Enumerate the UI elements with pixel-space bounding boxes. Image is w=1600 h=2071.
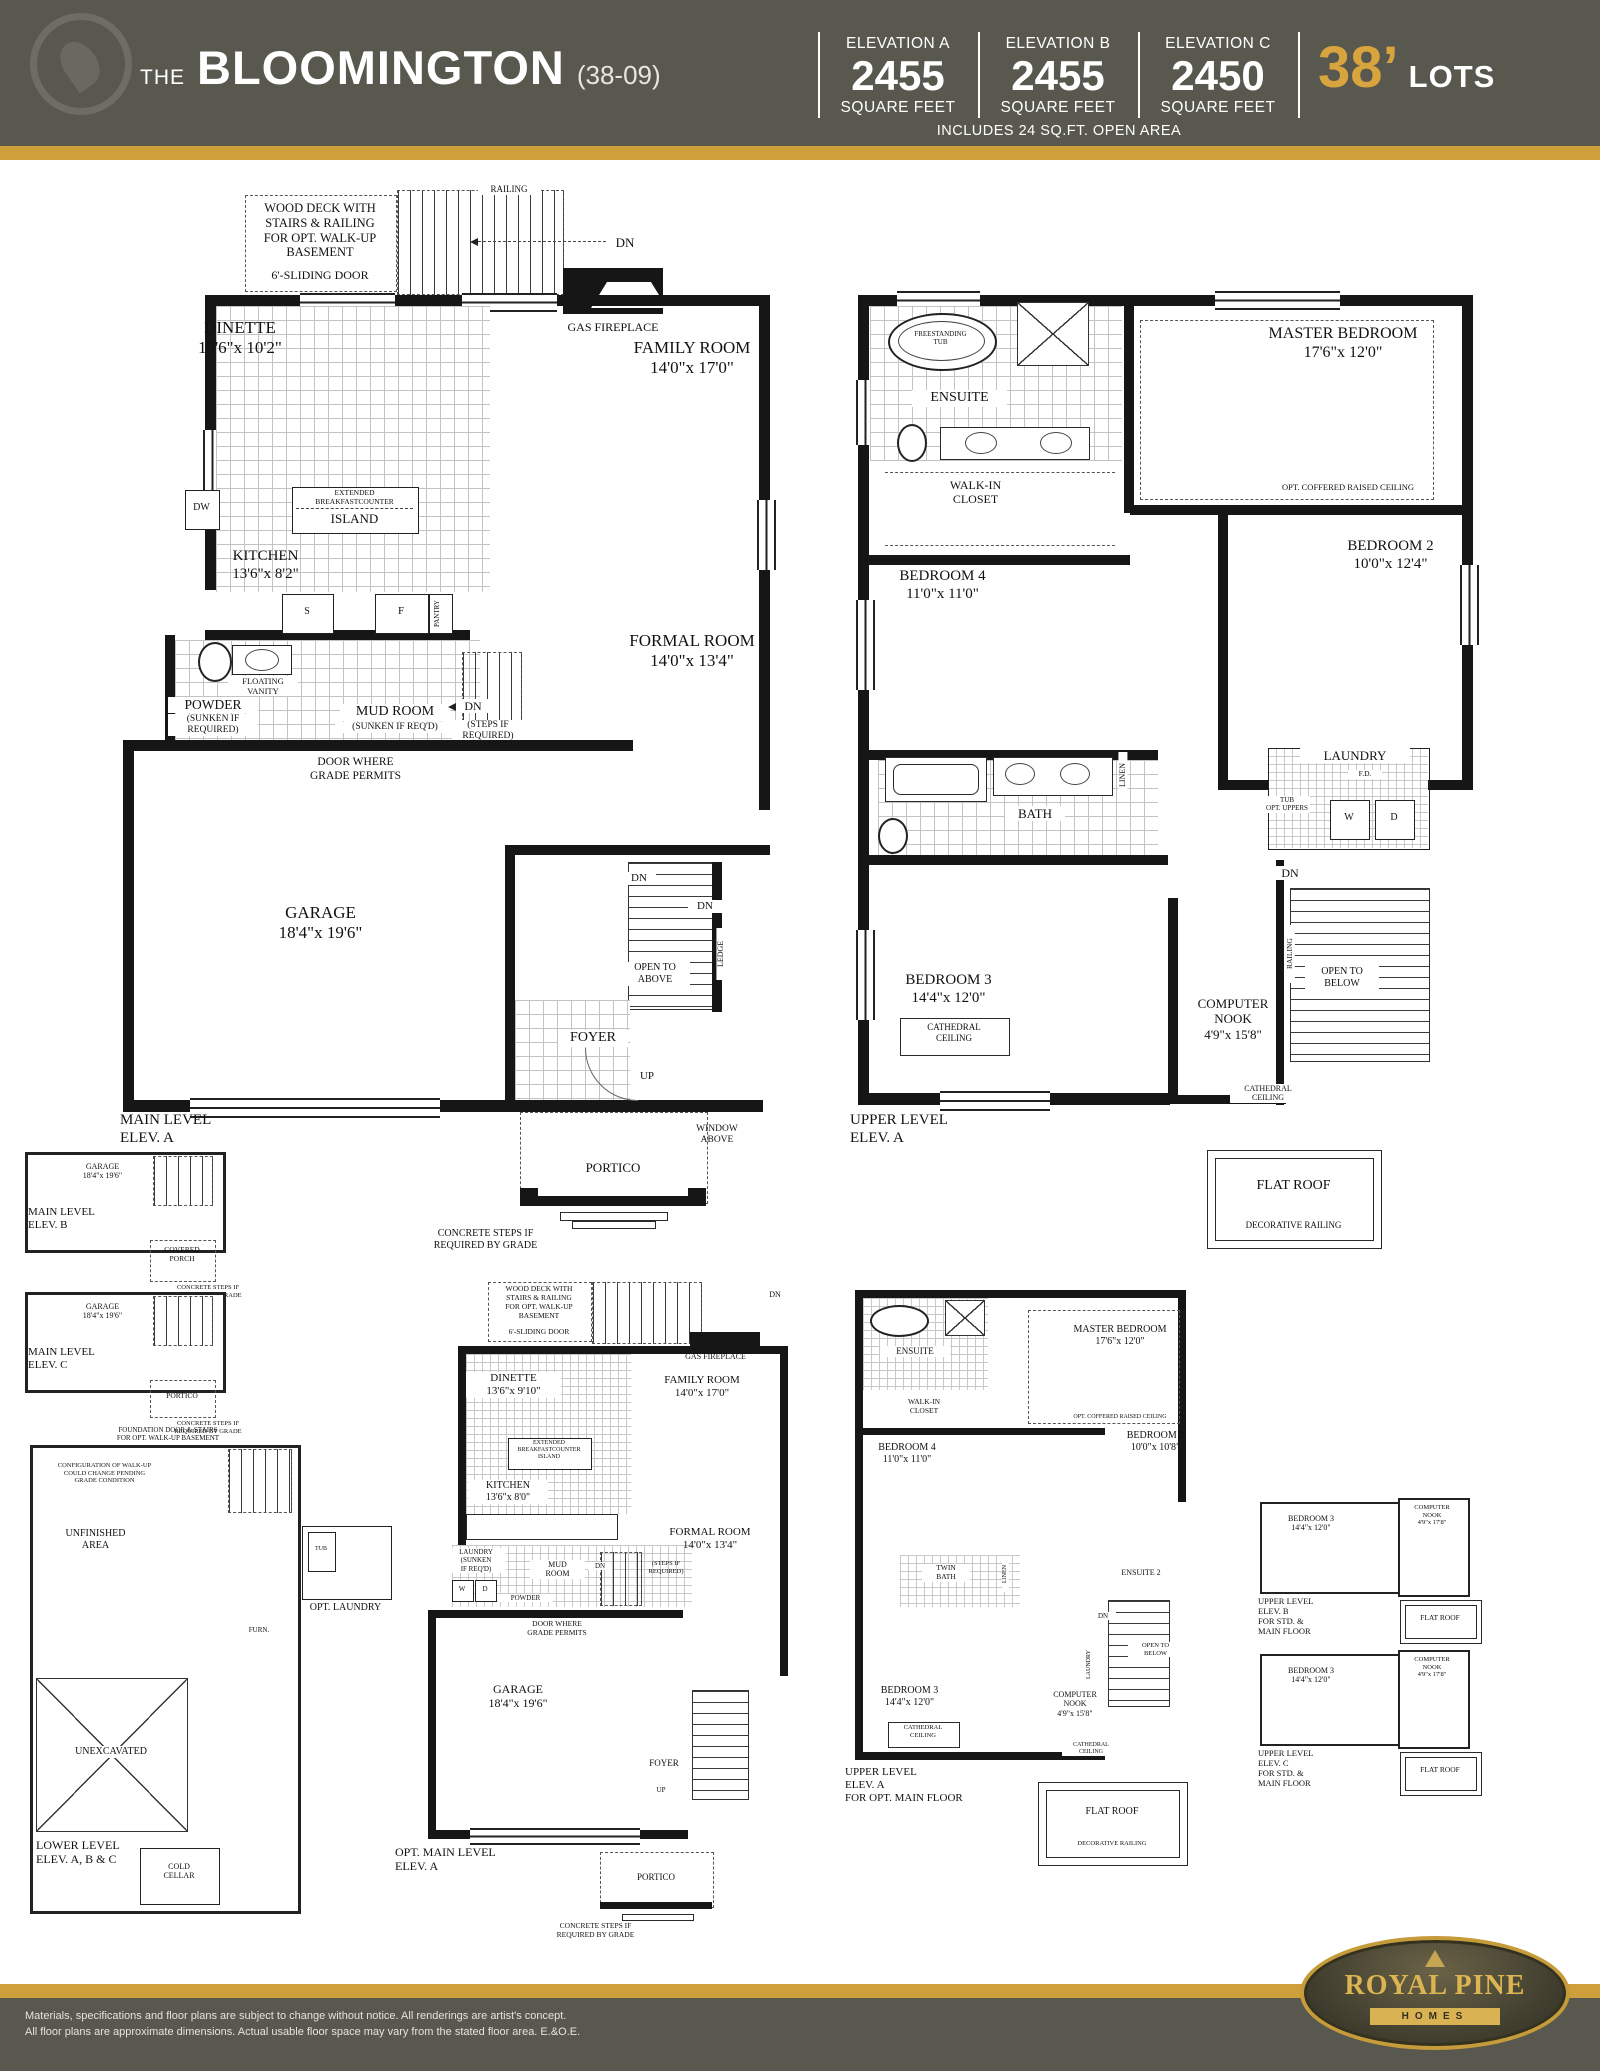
bedroom4-label: BEDROOM 4 11'0"x 11'0"	[862, 1442, 952, 1466]
garage-label: GARAGE 18'4"x 19'6"	[55, 1302, 150, 1321]
dryer-label: D	[1375, 812, 1413, 824]
elevation-b-sqft: 2455	[980, 53, 1136, 99]
plan-name-label: MAIN LEVEL ELEV. C	[28, 1346, 123, 1372]
sliding-door-label: 6'-SLIDING DOOR	[247, 268, 393, 282]
mud-dn-label: DN	[456, 699, 490, 713]
concrete-note-label: CONCRETE STEPS IF REQUIRED BY GRADE	[418, 1228, 553, 1252]
sink	[1040, 432, 1072, 454]
bedroom4-label: BEDROOM 4 11'0"x 11'0"	[880, 568, 1005, 603]
unexcavated-label: UNEXCAVATED	[68, 1746, 154, 1758]
plan-name-label: MAIN LEVEL ELEV. A	[120, 1112, 250, 1147]
decorative-railing-label: DECORATIVE RAILING	[1228, 1220, 1359, 1231]
stair-dn2-label: DN	[688, 900, 722, 913]
column	[688, 1188, 706, 1206]
island-label: ISLAND	[294, 511, 415, 526]
garage-label: GARAGE 18'4"x 19'6"	[258, 903, 383, 943]
window	[757, 500, 776, 570]
lot-size-value: 38’	[1318, 34, 1399, 101]
arrow-left-icon	[470, 238, 478, 246]
cathedral-ceiling-label: CATHEDRAL CEILING	[889, 1724, 957, 1739]
wall	[858, 555, 1130, 565]
wall	[855, 1290, 1185, 1298]
railing-label: RAILING	[478, 184, 540, 195]
foundation-note-label: FOUNDATION DOOR & STAIRS FOR OPT. WALK-U…	[88, 1426, 248, 1443]
window	[856, 600, 875, 690]
furnace-label: FURN.	[238, 1626, 280, 1634]
bedroom2-label: BEDROOM 2 10'0"x 10'8"	[1108, 1430, 1203, 1454]
upper-dn-label: DN	[1272, 866, 1308, 880]
laundry-label: LAUNDRY	[1086, 1640, 1093, 1688]
concrete-step	[560, 1212, 668, 1221]
up-label: UP	[648, 1786, 674, 1794]
steps-note-label: (STEPS IF REQUIRED)	[640, 1560, 692, 1575]
ensuite-label: ENSUITE	[880, 1346, 950, 1357]
toilet	[198, 642, 232, 682]
wall	[123, 740, 134, 1112]
dn-label: DN	[1090, 1612, 1116, 1620]
open-below-label: OPEN TO BELOW	[1128, 1642, 1183, 1657]
elevation-c-sqft: 2450	[1140, 53, 1296, 99]
computer-nook-label: COMPUTER NOOK 4'9"x 15'8"	[1040, 1690, 1110, 1718]
wall	[520, 1196, 706, 1206]
ensuite2-label: ENSUITE 2	[1108, 1568, 1174, 1577]
stair-direction-line	[478, 241, 606, 242]
open-above-label: OPEN TO ABOVE	[620, 962, 690, 986]
title-name: BLOOMINGTON	[197, 40, 565, 95]
bedroom3-label: BEDROOM 3 14'4"x 12'0"	[886, 972, 1011, 1007]
elevation-c-unit: SQUARE FEET	[1140, 99, 1296, 117]
formal-room-label: FORMAL ROOM 14'0"x 13'4"	[612, 631, 772, 671]
tub-opt-uppers-label: TUB OPT. UPPERS	[1264, 796, 1310, 813]
cathedral-ceiling2-label: CATHEDRAL CEILING	[1230, 1084, 1306, 1103]
freestanding-tub	[870, 1305, 929, 1337]
island-label: EXTENDED BREAKFASTCOUNTER ISLAND	[509, 1440, 589, 1461]
master-bedroom-label: MASTER BEDROOM 17'6"x 12'0"	[1060, 1324, 1180, 1348]
twin-bath-label: TWIN BATH	[922, 1564, 970, 1582]
bathtub-inner	[893, 764, 979, 795]
open-area-note: INCLUDES 24 SQ.FT. OPEN AREA	[818, 123, 1300, 139]
shower	[1017, 302, 1089, 366]
flat-roof-inner	[1046, 1790, 1180, 1858]
sliding-door-label: 6'-SLIDING DOOR	[489, 1328, 589, 1337]
concrete-note-label: CONCRETE STEPS IF REQUIRED BY GRADE	[538, 1922, 653, 1940]
ledge-label: LEDGE	[716, 928, 725, 980]
coffered-ceiling-label: OPT. COFFERED RAISED CEILING	[1268, 482, 1428, 492]
wall	[428, 1610, 683, 1618]
stair-dn-label: DN	[622, 872, 656, 885]
covered-porch-label: COVERED PORCH	[151, 1246, 213, 1264]
deck-note-label: WOOD DECK WITH STAIRS & RAILING FOR OPT.…	[489, 1285, 589, 1320]
wall	[868, 855, 1168, 865]
sink	[245, 649, 279, 671]
sink	[965, 432, 997, 454]
disclaimer-line-2: All floor plans are approximate dimensio…	[25, 2024, 580, 2040]
lot-size-badge: 38’ LOTS	[1318, 34, 1495, 101]
computer-nook-label: COMPUTER NOOK 4'9"x 17'8"	[1400, 1504, 1464, 1527]
walk-in-closet-label: WALK-IN CLOSET	[888, 1398, 960, 1416]
mud-room-sub-label: (SUNKEN IF REQ'D)	[335, 722, 455, 733]
floor-drain-label: F.D.	[1348, 770, 1382, 779]
concrete-step	[622, 1914, 694, 1921]
wall	[1168, 898, 1178, 1103]
foyer-label: FOYER	[636, 1758, 692, 1769]
toilet	[897, 424, 927, 462]
cathedral-ceiling2-label: CATHEDRAL CEILING	[1062, 1742, 1120, 1756]
concrete-step	[572, 1221, 656, 1229]
foyer-label: FOYER	[558, 1030, 628, 1047]
decorative-railing-label: DECORATIVE RAILING	[1054, 1840, 1170, 1848]
dinette-label: DINETTE 13'6"x 9'10"	[466, 1372, 561, 1398]
title-model-code: (38-09)	[577, 60, 661, 91]
portico-label: PORTICO	[151, 1392, 213, 1401]
wall	[428, 1610, 436, 1838]
plan-name-label: UPPER LEVEL ELEV. C FOR STD. & MAIN FLOO…	[1258, 1748, 1348, 1788]
plan-name-label: MAIN LEVEL ELEV. B	[28, 1206, 123, 1232]
stairs	[153, 1296, 213, 1346]
computer-nook-label: COMPUTER NOOK 4'9"x 17'8"	[1400, 1656, 1464, 1679]
deck-stairs	[592, 1282, 702, 1344]
coffered-ceiling-label: OPT. COFFERED RAISED CEILING	[1065, 1414, 1175, 1421]
bedroom3-label: BEDROOM 3 14'4"x 12'0"	[1266, 1666, 1356, 1685]
linen-label: LINEN	[1118, 752, 1127, 798]
pine-tree-icon	[1425, 1950, 1445, 1967]
plan-name-label: UPPER LEVEL ELEV. B FOR STD. & MAIN FLOO…	[1258, 1596, 1348, 1636]
opt-laundry-label: OPT. LAUNDRY	[298, 1602, 393, 1614]
arrow-left-icon	[448, 703, 456, 711]
laundry-label: LAUNDRY	[1300, 748, 1410, 763]
bedroom3-label: BEDROOM 3 14'4"x 12'0"	[1266, 1514, 1356, 1533]
title-prefix: THE	[140, 66, 185, 90]
window	[940, 1091, 1050, 1111]
wall	[505, 845, 770, 855]
bedroom3-label: BEDROOM 3 14'4"x 12'0"	[862, 1685, 957, 1709]
master-bedroom-label: MASTER BEDROOM 17'6"x 12'0"	[1258, 325, 1428, 363]
powder-label: POWDER	[168, 697, 258, 713]
stairs	[600, 1552, 642, 1606]
unfinished-area-label: UNFINISHED AREA	[48, 1528, 143, 1552]
portico-outline	[520, 1112, 708, 1204]
open-below-label: OPEN TO BELOW	[1305, 966, 1379, 990]
gold-divider-bar-top	[0, 146, 1600, 160]
wall	[505, 845, 515, 1112]
window	[1215, 291, 1340, 310]
page-header: THE BLOOMINGTON (38-09) ELEVATION A 2455…	[0, 0, 1600, 146]
elevation-b-unit: SQUARE FEET	[980, 99, 1136, 117]
fridge-label: F	[375, 605, 427, 618]
config-note-label: CONFIGURATION OF WALK-UP COULD CHANGE PE…	[42, 1462, 167, 1485]
computer-nook-label: COMPUTER NOOK 4'9"x 15'8"	[1188, 996, 1278, 1042]
royal-pine-homes-logo: ROYAL PINE HOMES	[1300, 1936, 1570, 2050]
column	[520, 1188, 538, 1206]
counter-divider	[296, 508, 413, 509]
walk-in-closet-label: WALK-IN CLOSET	[928, 478, 1023, 506]
garage-door	[470, 1828, 640, 1845]
dryer-label: D	[475, 1585, 495, 1593]
portico-label: PORTICO	[616, 1872, 696, 1883]
floating-vanity-label: FLOATING VANITY	[228, 676, 298, 696]
elevation-a-sqft: 2455	[820, 53, 976, 99]
page-title: THE BLOOMINGTON (38-09)	[140, 40, 661, 95]
elevation-c-cell: ELEVATION C 2450 SQUARE FEET	[1140, 35, 1296, 117]
powder-sub-label: (SUNKEN IF REQUIRED)	[168, 714, 258, 736]
formal-room-label: FORMAL ROOM 14'0"x 13'4"	[650, 1526, 770, 1552]
ensuite-label: ENSUITE	[912, 390, 1007, 407]
wall	[1462, 295, 1473, 790]
sink	[1005, 763, 1035, 785]
plan-name-label: LOWER LEVEL ELEV. A, B & C	[36, 1838, 146, 1866]
family-room-label: FAMILY ROOM 14'0"x 17'0"	[612, 338, 772, 378]
leaf-icon	[52, 35, 107, 94]
washer-label: W	[1330, 812, 1368, 824]
flat-roof-label: FLAT ROOF	[1062, 1806, 1162, 1818]
deck-stairs	[397, 190, 564, 295]
railing-label: RAILING	[1286, 925, 1295, 983]
tub-label: TUB	[308, 1546, 334, 1553]
sink	[1060, 763, 1090, 785]
cold-cellar-label: COLD CELLAR	[148, 1862, 210, 1881]
wall	[600, 1902, 712, 1909]
bath-label: BATH	[1005, 806, 1065, 821]
family-room-label: FAMILY ROOM 14'0"x 17'0"	[642, 1374, 762, 1400]
wall	[1124, 295, 1134, 513]
fireplace	[690, 1332, 760, 1348]
bedroom2-label: BEDROOM 2 10'0"x 12'4"	[1328, 538, 1453, 573]
wall	[123, 740, 633, 751]
laundry-label: LAUNDRY (SUNKEN IF REQ'D)	[446, 1548, 506, 1573]
window	[856, 930, 875, 1020]
wall	[1218, 505, 1228, 790]
builder-crest-icon	[30, 13, 132, 115]
deck-dn-label: DN	[608, 235, 642, 250]
elevation-c-label: ELEVATION C	[1140, 35, 1296, 53]
disclaimer-line-1: Materials, specifications and floor plan…	[25, 2008, 566, 2024]
logo-name: ROYAL PINE	[1304, 1970, 1566, 2002]
washer-label: W	[452, 1585, 472, 1593]
gas-fireplace-label: GAS FIREPLACE	[553, 320, 673, 334]
toilet	[878, 818, 908, 854]
door-grade-label: DOOR WHERE GRADE PERMITS	[512, 1620, 602, 1638]
plan-name-label: UPPER LEVEL ELEV. A FOR OPT. MAIN FLOOR	[845, 1766, 995, 1805]
plan-name-label: OPT. MAIN LEVEL ELEV. A	[395, 1845, 520, 1873]
window	[1460, 565, 1479, 645]
mud-room-label: MUD ROOM	[530, 1560, 585, 1579]
flat-roof-label: FLAT ROOF	[1405, 1766, 1475, 1775]
dinette-label: DINETTE 13'6"x 10'2"	[175, 318, 305, 358]
stairs	[228, 1449, 292, 1513]
flat-roof-label: FLAT ROOF	[1405, 1614, 1475, 1623]
dishwasher-label: DW	[185, 502, 218, 514]
garage-label: GARAGE 18'4"x 19'6"	[55, 1162, 150, 1181]
linen-label: LINEN	[1002, 1556, 1009, 1592]
island-top-label: EXTENDED BREAKFASTCOUNTER	[294, 489, 415, 507]
stove-label: S	[282, 606, 332, 618]
mud-room-label: MUD ROOM	[340, 704, 450, 721]
powder-label: POWDER	[498, 1594, 553, 1602]
wall	[1276, 860, 1284, 1105]
flat-roof-label: FLAT ROOF	[1232, 1178, 1355, 1195]
elevation-a-label: ELEVATION A	[820, 35, 976, 53]
gas-fireplace-label: GAS FIREPLACE	[668, 1352, 763, 1361]
plan-name-label: UPPER LEVEL ELEV. A	[850, 1112, 990, 1147]
elevation-a-unit: SQUARE FEET	[820, 99, 976, 117]
wall	[513, 1100, 763, 1112]
wall	[855, 1428, 1105, 1435]
stairs	[153, 1156, 213, 1206]
mud-dn-label: DN	[588, 1562, 612, 1570]
pantry-label: PANTRY	[433, 596, 441, 632]
deck-note-label: WOOD DECK WITH STAIRS & RAILING FOR OPT.…	[247, 201, 393, 260]
elevation-b-label: ELEVATION B	[980, 35, 1136, 53]
shower	[945, 1300, 985, 1336]
wall	[458, 1346, 466, 1558]
divider	[1298, 32, 1300, 118]
counter	[466, 1514, 618, 1540]
cathedral-ceiling-label: CATHEDRAL CEILING	[902, 1022, 1006, 1043]
kitchen-label: KITCHEN 13'6"x 8'0"	[468, 1480, 548, 1504]
kitchen-label: KITCHEN 13'6"x 8'2"	[218, 548, 313, 583]
elevation-a-cell: ELEVATION A 2455 SQUARE FEET	[820, 35, 976, 117]
elevation-b-cell: ELEVATION B 2455 SQUARE FEET	[980, 35, 1136, 117]
deck-dn-label: DN	[762, 1290, 788, 1299]
stairs	[692, 1690, 749, 1800]
logo-sub: HOMES	[1370, 2008, 1500, 2025]
lot-size-label: LOTS	[1409, 59, 1496, 95]
wall	[1130, 505, 1473, 515]
freestanding-tub-label: FREESTANDING TUB	[893, 330, 988, 347]
garage-label: GARAGE 18'4"x 19'6"	[468, 1682, 568, 1710]
wall	[780, 1346, 788, 1676]
portico-label: PORTICO	[548, 1160, 678, 1175]
door-grade-label: DOOR WHERE GRADE PERMITS	[298, 756, 413, 783]
